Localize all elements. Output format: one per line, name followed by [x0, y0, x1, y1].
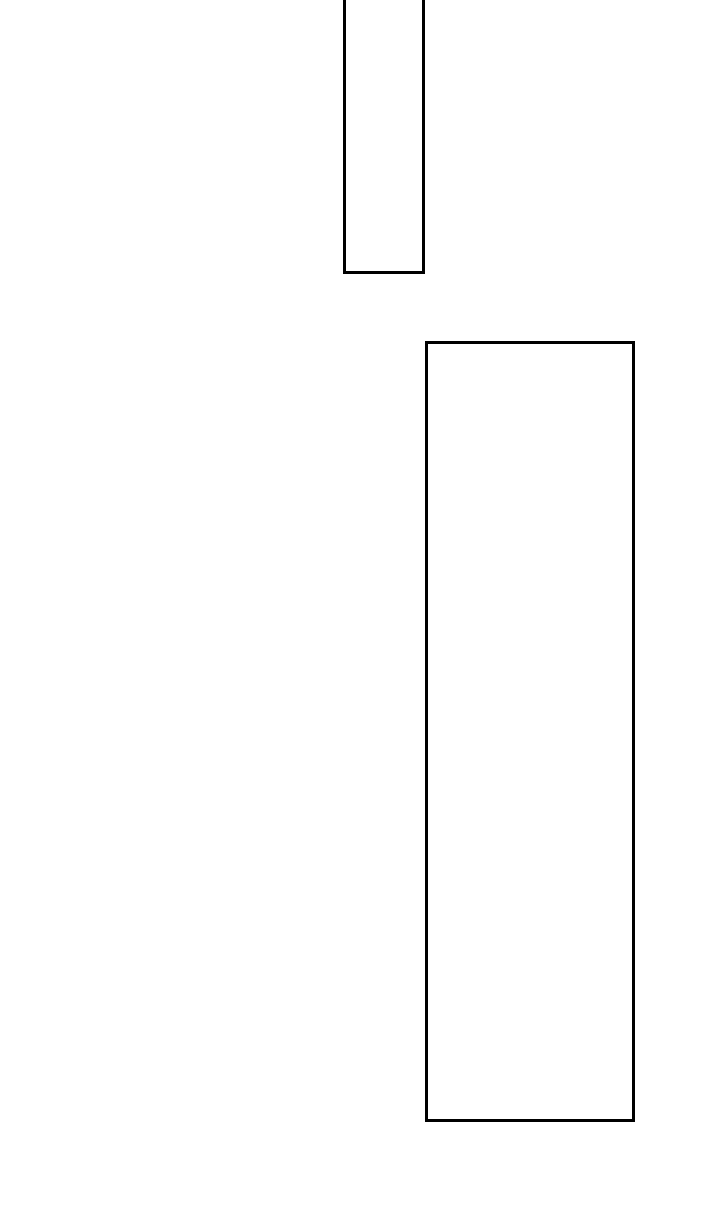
tall-rectangle: [425, 341, 635, 1122]
drawing-canvas: [0, 0, 720, 1212]
top-rectangle: [343, 0, 425, 274]
